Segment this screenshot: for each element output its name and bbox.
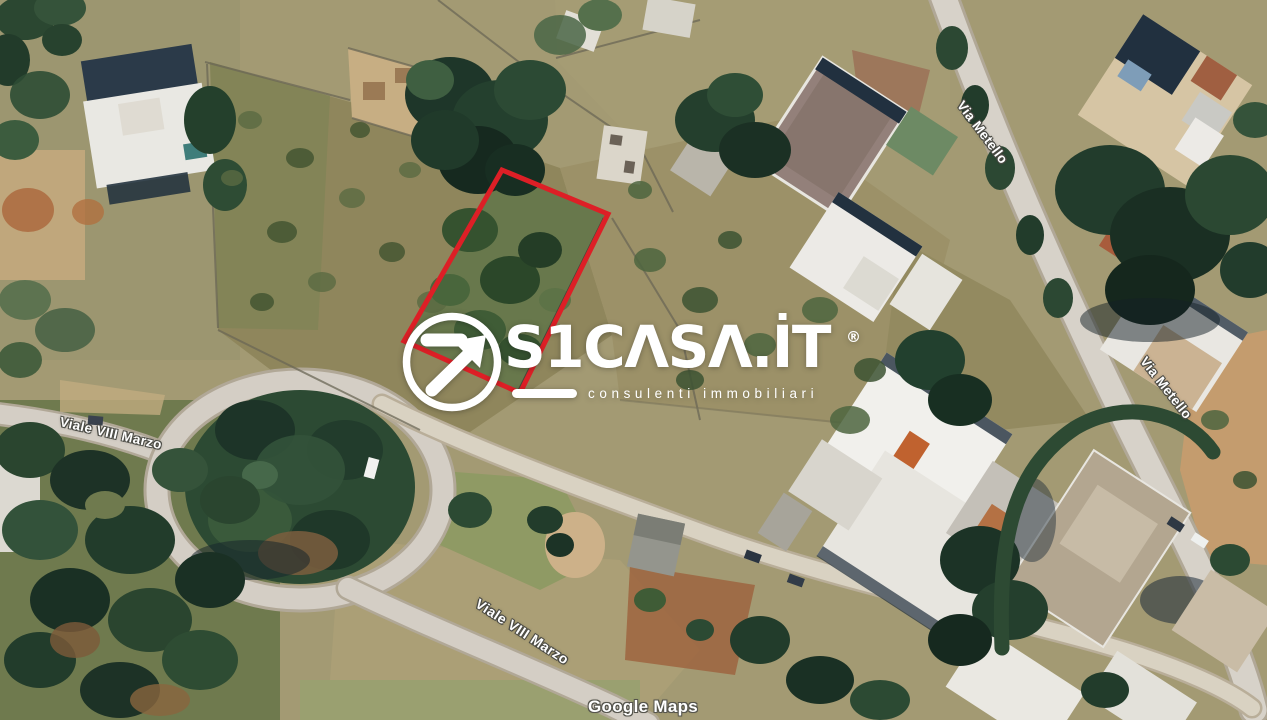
- registered-trademark-symbol: ®: [846, 328, 861, 346]
- brand-watermark: S1CΛSΛ.İT ® consulenti immobiliari: [0, 0, 1267, 720]
- brand-underline-bar: [512, 389, 577, 398]
- brand-arrow-icon: [401, 308, 503, 418]
- brand-tagline: consulenti immobiliari: [588, 386, 818, 401]
- google-maps-attribution: Google Maps: [588, 697, 698, 717]
- satellite-map: Viale VIII Marzo Via Metello Via Metello…: [0, 0, 1267, 720]
- brand-name: S1CΛSΛ.İT: [504, 318, 830, 376]
